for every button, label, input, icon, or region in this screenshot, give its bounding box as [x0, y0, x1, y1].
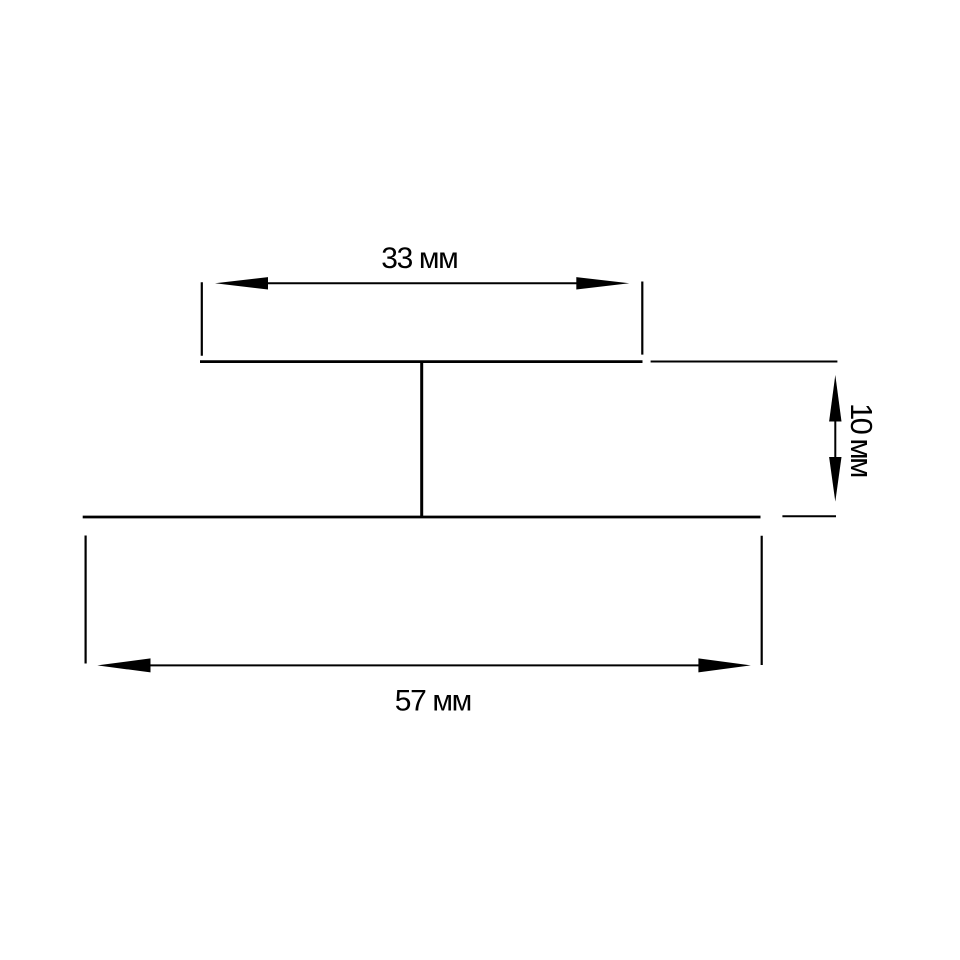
- svg-text:57 мм: 57 мм: [395, 685, 473, 718]
- svg-text:10 мм: 10 мм: [844, 403, 879, 479]
- svg-text:33 мм: 33 мм: [381, 242, 459, 275]
